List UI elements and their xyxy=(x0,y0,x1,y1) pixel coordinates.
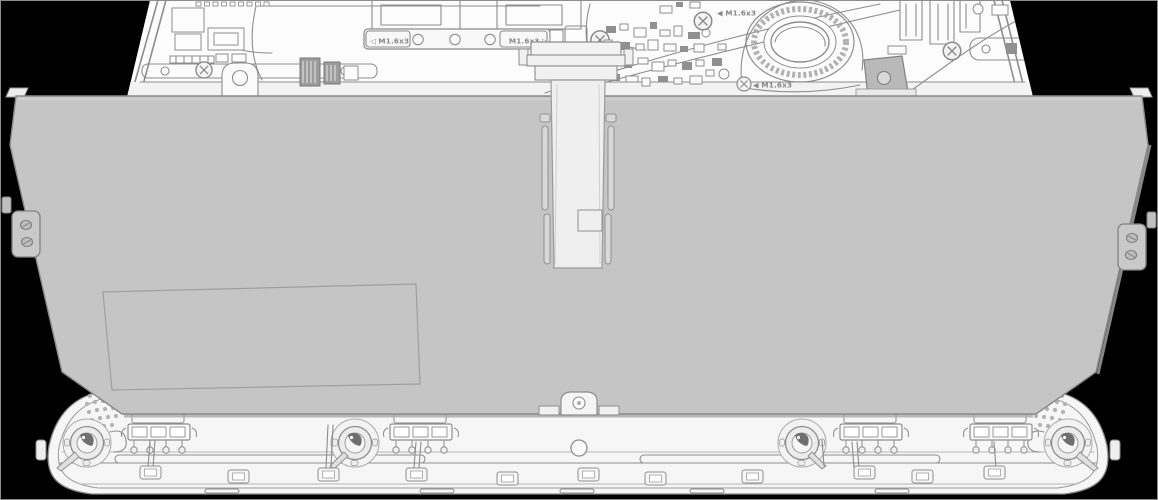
latch-clip xyxy=(406,468,427,481)
service-illustration: ◁ M1.6x3 M1.6x3 ▷ xyxy=(0,0,1158,500)
latch-clip xyxy=(912,470,933,483)
screw-icon xyxy=(694,12,712,30)
right-edge-nub xyxy=(1110,440,1120,460)
latch-clip xyxy=(984,466,1005,479)
mount-tab-hole xyxy=(233,71,248,86)
callout-bracket-left: ◁ M1.6x3 xyxy=(370,37,409,46)
latch-clip xyxy=(228,470,249,483)
screw-icon xyxy=(737,77,751,91)
latch-clip xyxy=(645,472,666,485)
left-edge-nub xyxy=(36,440,46,460)
battery-side-tab-left xyxy=(12,211,40,257)
callout-top-screw: ◀ M1.6x3 xyxy=(717,9,756,18)
latch-clip xyxy=(578,468,599,481)
device-diagram: ◁ M1.6x3 M1.6x3 ▷ xyxy=(0,0,1158,500)
center-hole xyxy=(571,440,587,456)
latch-clip xyxy=(497,472,518,485)
vent-row xyxy=(196,2,269,6)
latch-clip xyxy=(854,466,875,479)
side-tab-nub-right xyxy=(1147,212,1156,228)
latch-clip xyxy=(318,468,339,481)
battery-side-tab-right xyxy=(1118,224,1146,270)
screw-icon xyxy=(943,42,961,60)
ribbon-cable xyxy=(551,80,605,268)
screw-icon xyxy=(196,62,212,78)
ribbon-pad xyxy=(578,210,602,231)
callout-fan-screw: ◀ M1.6x3 xyxy=(753,81,792,90)
side-tab-nub-left xyxy=(2,197,11,213)
latch-clip xyxy=(140,466,161,479)
latch-clip xyxy=(742,470,763,483)
